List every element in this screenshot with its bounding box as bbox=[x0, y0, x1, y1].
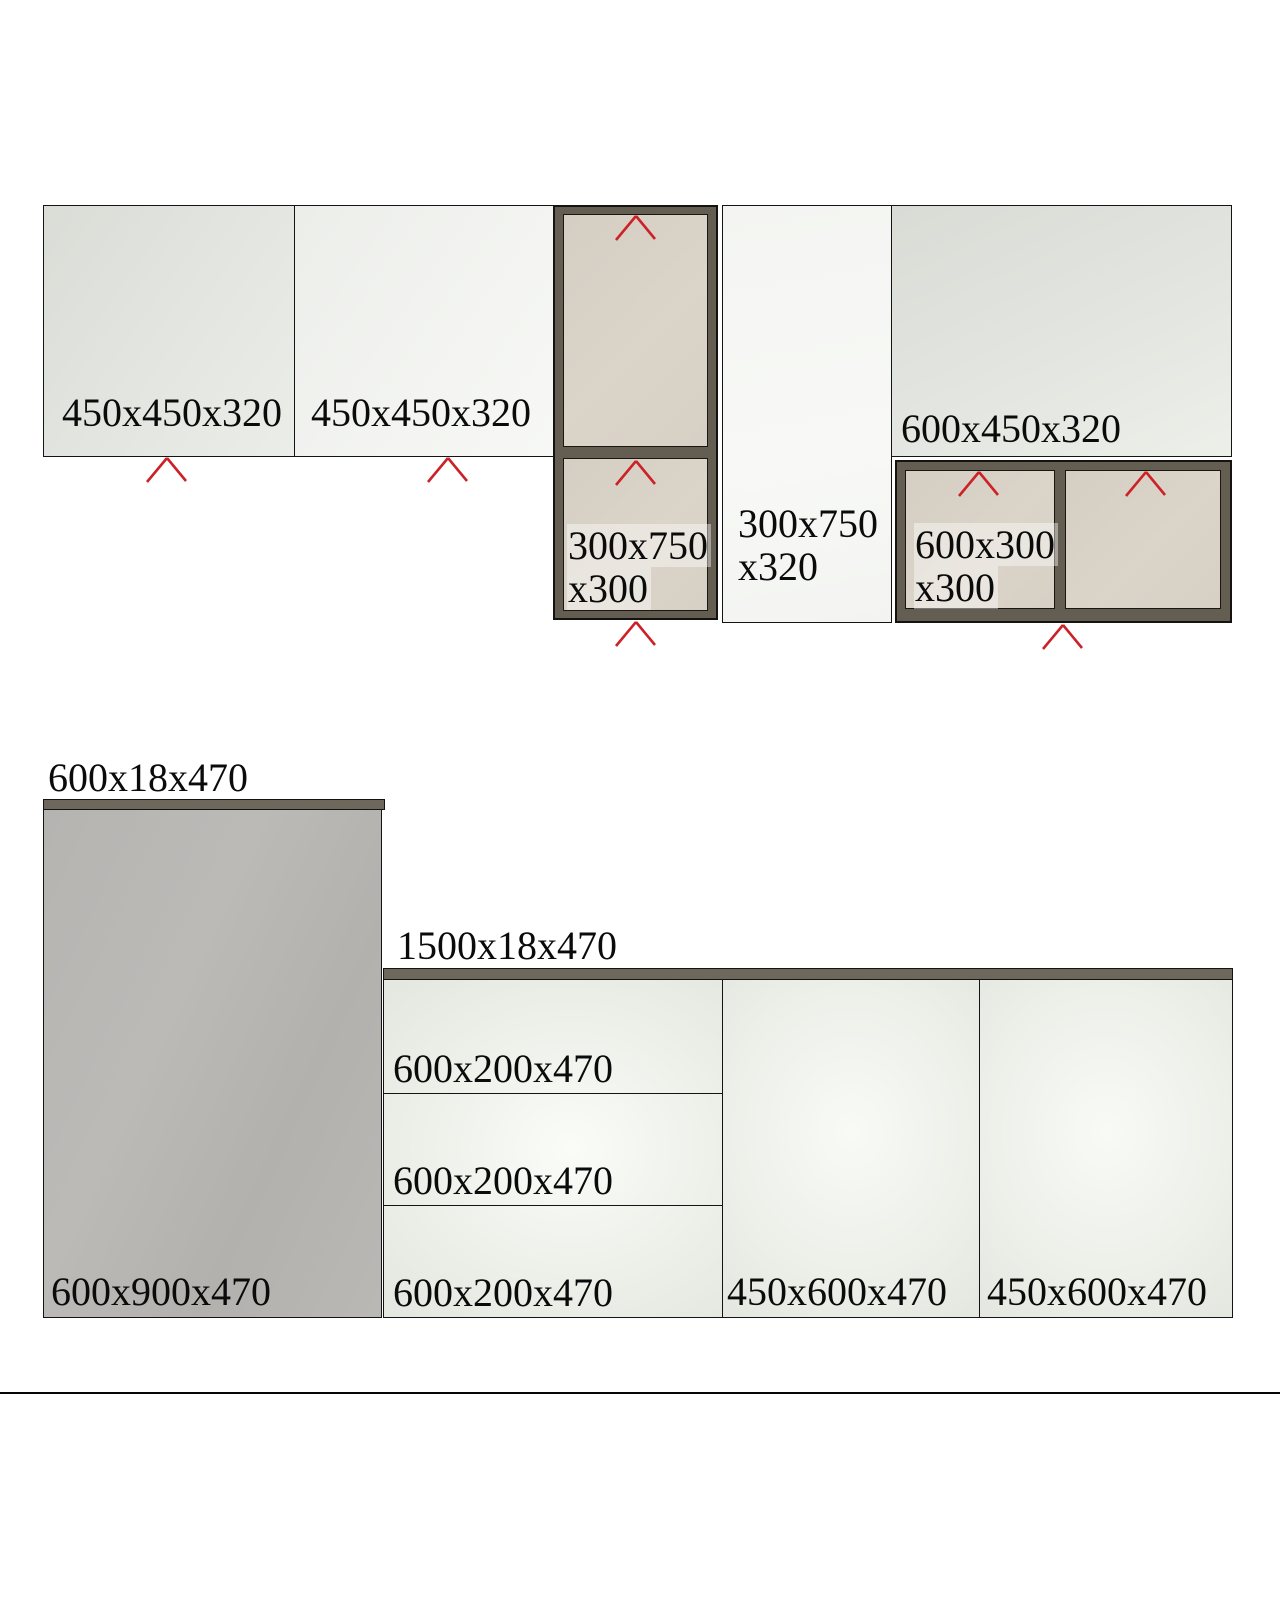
drawer-2: 600x200x470 bbox=[384, 1093, 722, 1205]
base-door-2: 450x600x470 bbox=[979, 979, 1233, 1318]
tall-base-cabinet: 600x900x470 bbox=[43, 809, 382, 1318]
door-swing-chevron-icon bbox=[614, 214, 658, 242]
wall-cabinet-600-right: 600x450x320 bbox=[891, 205, 1232, 457]
wall-cabinet-450-left: 450x450x320 bbox=[43, 205, 295, 457]
dimension-label: 450x450x320 bbox=[311, 392, 531, 434]
drawer-3: 600x200x470 bbox=[384, 1205, 722, 1317]
dimension-label: 450x600x470 bbox=[727, 1271, 947, 1313]
dimension-label: 600x200x470 bbox=[393, 1272, 613, 1314]
door-swing-chevron-icon bbox=[426, 456, 470, 484]
dimension-label: 1500x18x470 bbox=[397, 925, 617, 967]
wall-cabinet-450-center: 450x450x320 bbox=[294, 205, 554, 457]
dimension-label: 600x450x320 bbox=[901, 408, 1121, 450]
drawer-bank: 600x200x470 600x200x470 600x200x470 bbox=[383, 979, 723, 1318]
door-swing-chevron-icon bbox=[1041, 623, 1085, 651]
door-swing-chevron-icon bbox=[1124, 470, 1168, 498]
dimension-label: 450x450x320 bbox=[62, 392, 282, 434]
dimension-label: 600x200x470 bbox=[393, 1160, 613, 1202]
dimension-label: 600x300 x300 bbox=[914, 523, 1058, 609]
cabinet-elevation-drawing: 450x450x320 450x450x320 300x750 x300 300… bbox=[0, 0, 1280, 1600]
door-swing-chevron-icon bbox=[614, 620, 658, 648]
open-shelf-unit-left: 300x750 x300 bbox=[553, 205, 718, 620]
dimension-label: 600x18x470 bbox=[48, 757, 248, 799]
open-shelf-unit-right: 600x300 x300 bbox=[895, 460, 1232, 623]
door-swing-chevron-icon bbox=[614, 459, 658, 487]
tall-wall-cabinet-300: 300x750 x320 bbox=[722, 205, 892, 623]
dimension-label: 300x750 x320 bbox=[738, 502, 878, 588]
dimension-label: 300x750 x300 bbox=[567, 524, 711, 610]
door-swing-chevron-icon bbox=[957, 470, 1001, 498]
dimension-label: 450x600x470 bbox=[987, 1271, 1207, 1313]
drawer-1: 600x200x470 bbox=[384, 980, 722, 1093]
shelf-opening-top bbox=[563, 214, 708, 447]
base-door-1: 450x600x470 bbox=[722, 979, 980, 1318]
dimension-label: 600x200x470 bbox=[393, 1048, 613, 1090]
baseline-rule bbox=[0, 1392, 1280, 1394]
door-swing-chevron-icon bbox=[145, 456, 189, 484]
dimension-label: 600x900x470 bbox=[51, 1271, 271, 1313]
